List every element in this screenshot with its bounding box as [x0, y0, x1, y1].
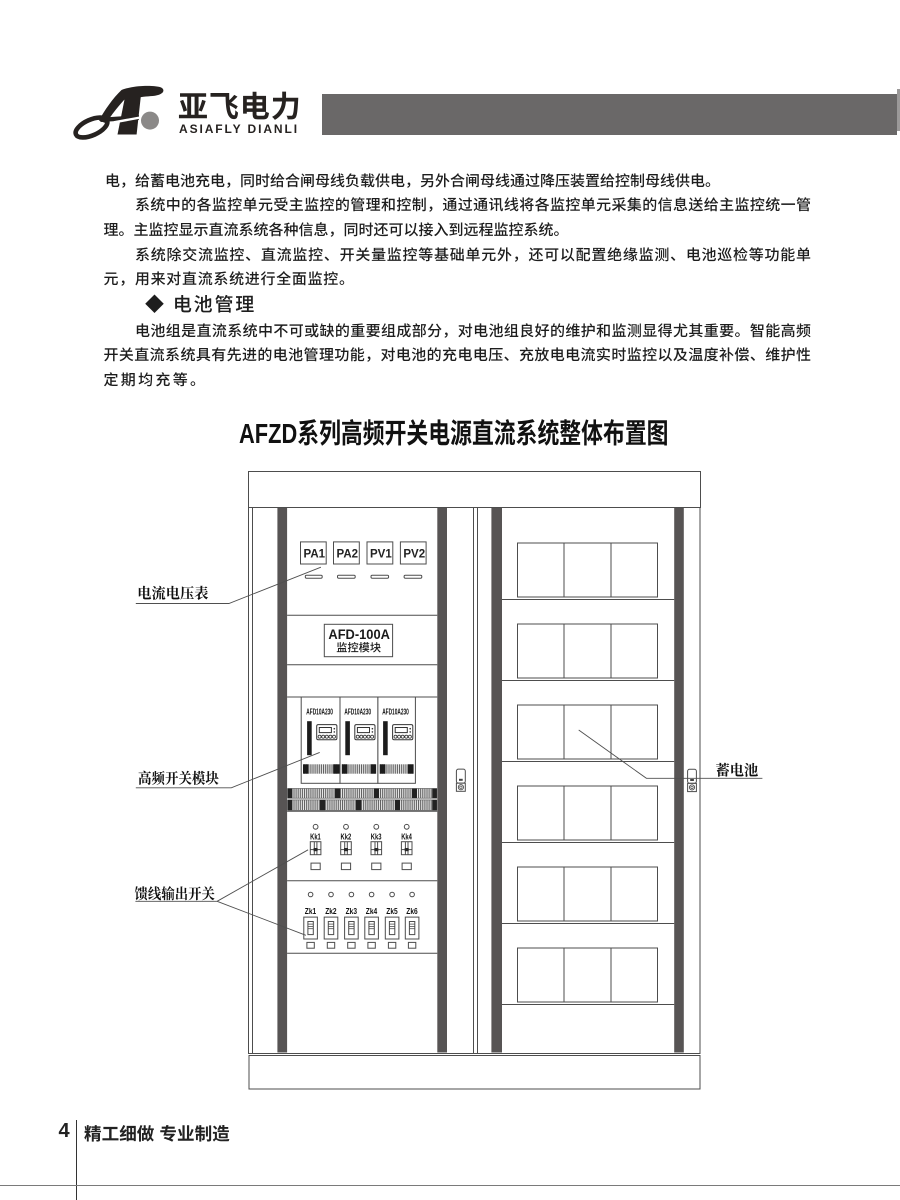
svg-text:AFD10A230: AFD10A230 — [306, 708, 333, 716]
svg-text:蓄电池: 蓄电池 — [716, 759, 759, 781]
svg-text:PA1: PA1 — [304, 549, 326, 561]
svg-text:PV1: PV1 — [370, 549, 392, 561]
svg-text:Kk1: Kk1 — [310, 834, 321, 842]
svg-text:Zk3: Zk3 — [346, 906, 357, 916]
svg-text:Zk2: Zk2 — [325, 906, 336, 916]
svg-text:Kk2: Kk2 — [341, 834, 352, 842]
svg-text:PA2: PA2 — [337, 549, 359, 561]
svg-text:Zk4: Zk4 — [366, 906, 377, 916]
svg-text:Kk4: Kk4 — [401, 834, 412, 842]
svg-text:电流电压表: 电流电压表 — [137, 582, 209, 604]
svg-text:PV2: PV2 — [403, 549, 425, 561]
svg-text:AFD10A230: AFD10A230 — [382, 708, 409, 716]
svg-text:AFD10A230: AFD10A230 — [344, 708, 371, 716]
svg-text:Zk6: Zk6 — [406, 906, 417, 916]
svg-text:Kk3: Kk3 — [371, 834, 382, 842]
svg-text:Zk1: Zk1 — [305, 906, 316, 916]
svg-text:高频开关模块: 高频开关模块 — [138, 768, 220, 789]
svg-text:监控模块: 监控模块 — [336, 640, 381, 656]
svg-text:Zk5: Zk5 — [386, 906, 397, 916]
